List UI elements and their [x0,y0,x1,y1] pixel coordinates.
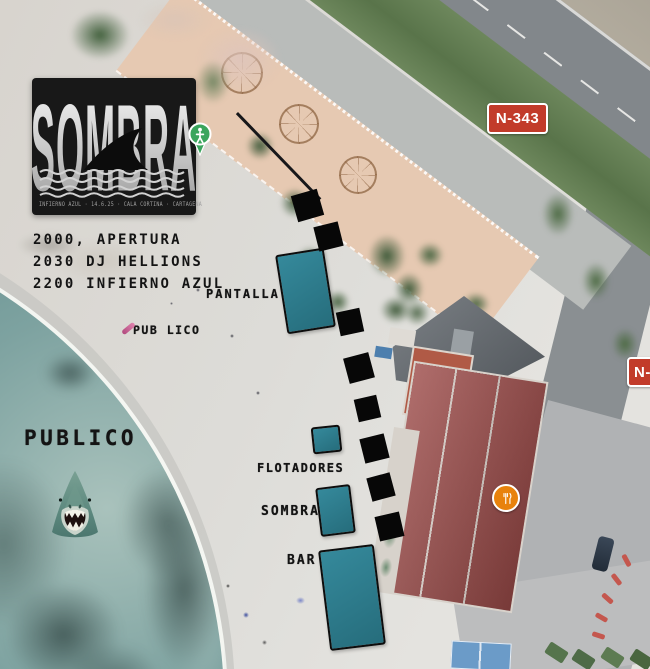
stage-block [336,308,364,336]
logo-waves [38,168,190,202]
road-sign-label: N-343 [496,110,539,127]
pergola-structure [279,104,319,144]
road-sign-n343: N-343 [487,103,548,134]
fork-knife-icon [499,491,514,506]
schedule-line: 2030 DJ HELLIONS [33,251,224,273]
label-publico-area: PUBLICO [24,426,137,450]
road-sign-label: N- [634,364,650,381]
zone-flotadores [311,425,343,455]
stage-block [354,395,382,423]
kiosk-white-roof [388,327,416,348]
stage-block [359,433,389,463]
zone-sombra [315,484,356,537]
pergola-structure [221,52,263,94]
handicap-parking-spot [450,640,511,669]
restaurant-marker [492,484,520,512]
zone-pantalla [275,248,336,335]
road-sign-n-partial: N- [627,357,650,387]
label-publico-line: PUB LICO [133,323,200,337]
logo-tagline: INFIERNO AZUL · 14.6.25 · CALA CORTINA ·… [39,201,189,208]
label-pantalla: PANTALLA [206,287,280,301]
label-sombra: SOMBRA [261,504,320,519]
label-bar: BAR [287,553,316,568]
event-logo-box: SOMBRA INFIERNO AZUL · 14.6.25 · CALA CO… [32,78,196,215]
park-poi-pin [187,122,213,156]
map-canvas: N-343 N- SOMBRA INFIERNO AZUL · 14.6.25 … [0,0,650,669]
shark-fin-icon [80,126,152,172]
event-schedule: 2000, APERTURA 2030 DJ HELLIONS 2200 INF… [33,229,224,295]
stage-block [343,352,375,384]
schedule-line: 2000, APERTURA [33,229,224,251]
pergola-structure [339,156,377,194]
schedule-line: 2200 INFIERNO AZUL [33,273,224,295]
label-flotadores: FLOTADORES [257,461,344,475]
jaws-shark-icon [48,470,102,540]
blue-awning [374,346,393,360]
